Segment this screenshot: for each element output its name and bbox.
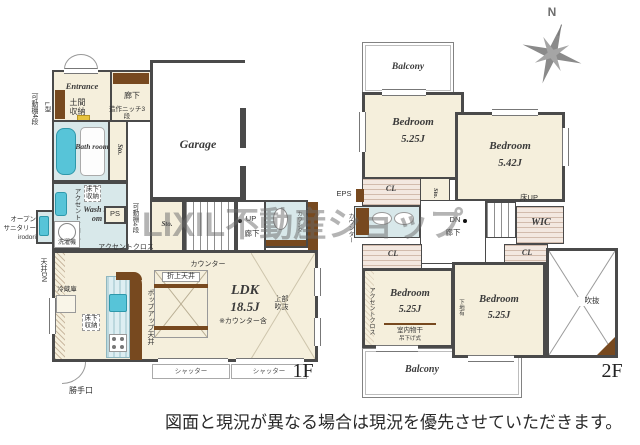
closet-2-label: CL xyxy=(380,249,406,258)
bedroom1-window-left xyxy=(359,112,366,152)
compass: N xyxy=(516,6,588,92)
shelf-type-label: L型 xyxy=(41,96,50,118)
stairs-down xyxy=(486,202,516,238)
bedroom4-wall-note: 下地有 xyxy=(455,292,464,322)
shutter-label-1: シャッター xyxy=(152,368,230,375)
back-door-label: 勝手口 xyxy=(62,386,100,395)
wic-label: WIC xyxy=(524,217,558,229)
upper-void-x xyxy=(251,253,315,359)
disclaimer-text: 図面と現況が異なる場合は現況を優先させていただきます。 xyxy=(165,408,622,433)
void-label: 吹抜 xyxy=(578,297,606,306)
entrance-shelf xyxy=(55,90,65,119)
bedroom3-size: 5.25J xyxy=(380,304,440,316)
bedroom3-accent-label: アクセントクロス xyxy=(364,280,374,342)
ldk-counter-label: カウンター xyxy=(186,261,230,269)
kitchen-sink xyxy=(109,294,127,312)
washer-drum xyxy=(58,223,76,241)
raised-ceiling-bar-bottom xyxy=(154,326,208,330)
bathtub xyxy=(56,128,76,175)
laundry-type-label: 吊下げ式 xyxy=(390,336,430,342)
bedroom4-name: Bedroom xyxy=(466,294,532,306)
laundry-pole xyxy=(384,323,436,325)
hallway-niche-shelf xyxy=(113,73,149,84)
ldk-window-right-2 xyxy=(314,318,321,346)
closet-1-label: CL xyxy=(378,184,404,193)
floorplan-page: { "watermark": "LIXIL不動産ショップ", "disclaim… xyxy=(0,0,640,445)
sanitary-sink xyxy=(39,216,49,236)
raised-ceiling-label: 折上天井 xyxy=(162,272,200,282)
bedroom3-window xyxy=(376,345,418,352)
popup-ceiling-label: ポップアップ天井 xyxy=(143,286,154,348)
kitchen-counter-side xyxy=(130,272,142,360)
niche-label: 造作ニッチ3段 xyxy=(108,106,146,121)
floor-up-label: 床UP xyxy=(514,194,544,203)
bedroom3-name: Bedroom xyxy=(380,288,440,300)
garage-pillar-1 xyxy=(240,108,246,148)
ldk-floor-storage-label: 床下収納 xyxy=(82,314,100,331)
bedroom2-window xyxy=(492,109,538,116)
doma-storage-label: 土間収納 xyxy=(68,98,87,116)
raised-ceiling-bar-top xyxy=(154,284,208,288)
stairs-dn-dot xyxy=(463,219,467,223)
sanitary-label-1: オープン xyxy=(4,216,36,223)
compass-rose-icon xyxy=(512,14,593,95)
room-bedroom-2 xyxy=(455,112,565,202)
bedroom1-name: Bedroom xyxy=(378,116,448,129)
void-corner-steps xyxy=(597,337,615,355)
pipe-space-label: PS xyxy=(106,210,124,219)
closet-3-label: CL xyxy=(514,248,540,257)
bedroom2-name: Bedroom xyxy=(472,140,548,153)
floor1-label: 1F xyxy=(284,360,322,383)
bedroom4-size: 5.25J xyxy=(466,310,532,322)
balcony-top-label: Balcony xyxy=(378,62,438,73)
bedroom1-window xyxy=(382,89,426,96)
bedroom2-size: 5.42J xyxy=(472,158,548,170)
balcony-bottom-label: Balcony xyxy=(390,364,454,376)
sanitary-label-2: サニタリー xyxy=(1,225,36,232)
fridge-label: 冷蔵庫 xyxy=(54,286,80,293)
front-door-arc xyxy=(64,54,98,69)
back-door-arc xyxy=(62,362,86,384)
bedroom2-window-right xyxy=(562,128,569,166)
laundry-label: 室内物干 xyxy=(382,327,438,334)
watermark: LIXIL不動産ショップ xyxy=(142,197,463,246)
floor2-label: 2F xyxy=(592,360,632,383)
bedroom1-size: 5.25J xyxy=(378,134,448,146)
bedroom4-window xyxy=(468,355,514,362)
garage-label: Garage xyxy=(170,138,226,152)
wash-basin xyxy=(55,192,67,216)
hallway-1f-label: 廊下 xyxy=(120,91,144,100)
ldk-window-right-1 xyxy=(314,268,321,296)
room-garage xyxy=(150,60,245,200)
washer-label: 洗濯機 xyxy=(54,240,80,247)
bath-storage-label: Sto. xyxy=(112,136,124,164)
fridge-box xyxy=(56,295,76,313)
ldk-window-left xyxy=(49,298,56,334)
entrance-label: Entrance xyxy=(56,82,108,92)
sanitary-label-3: irodori xyxy=(4,234,36,241)
garage-pillar-2 xyxy=(240,166,246,200)
stove-burners xyxy=(112,337,116,341)
wash-floor-storage-label: 床下収納 xyxy=(84,185,101,202)
ceiling-down-label: 天井DN xyxy=(36,250,47,290)
bathroom-label: Bath room xyxy=(74,143,110,152)
entrance-shelf-label: 可動棚4段 xyxy=(28,86,38,132)
center-shelf-label: 可動棚4段 xyxy=(129,196,138,240)
